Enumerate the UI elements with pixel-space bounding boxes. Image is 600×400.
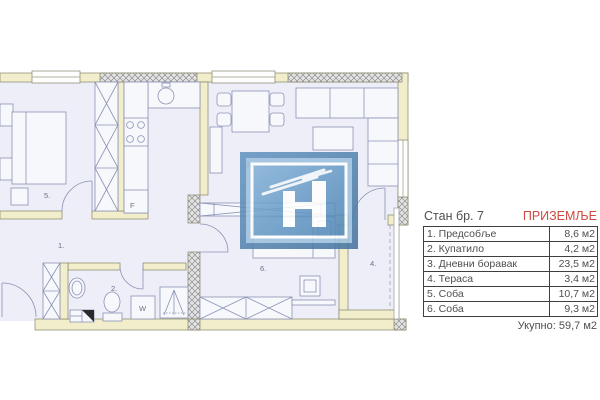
room-name: 5. Соба [424,287,550,302]
label-fridge: F [130,201,135,210]
table-row: 6. Соба 9,3 м2 [424,302,598,317]
table-row: 4. Тераса 3,4 м2 [424,272,598,287]
coffee-table [313,127,353,150]
bathroom-top-wall-right [143,263,186,270]
bathroom-top-wall-left [68,263,120,270]
table-row: 2. Купатило 4,2 м2 [424,242,598,257]
room-area: 3,4 м2 [550,272,598,287]
wardrobe-wall-strip [118,82,124,211]
floor-plan-drawing: 1. 2. 3. 4. 5. 6. F W [0,0,600,400]
table-row: 1. Предсобље 8,6 м2 [424,227,598,242]
total-area: Укупно: 59,7 м2 [423,320,598,332]
room-name: 4. Тераса [424,272,550,287]
bathroom-sink [69,278,85,298]
kitchen-living-wall [200,82,208,195]
room-area: 4,2 м2 [550,242,598,257]
floor-plan-page: 1. 2. 3. 4. 5. 6. F W [0,0,600,400]
room-area: 8,6 м2 [550,227,598,242]
kitchen-stove [124,118,148,146]
bedroom5-wardrobe [95,82,118,211]
kitchen-sink [158,88,174,104]
hallway-closet [43,263,60,319]
bedroom6-desk [300,276,320,296]
table-row: 3. Дневни боравак 23,5 м2 [424,257,598,272]
label-terrace: 4. [370,259,376,268]
bathroom-vanity [70,310,94,322]
living-shelf [210,127,222,173]
floor-title: ПРИЗЕМЉЕ [523,209,597,223]
room-name: 1. Предсобље [424,227,550,242]
label-washer: W [139,304,147,313]
label-bedroom5: 5. [44,191,50,200]
bedroom5-wall-left [0,211,62,219]
watermark-logo [240,152,358,249]
label-hallway: 1. [58,241,64,250]
room-name: 3. Дневни боравак [424,257,550,272]
apartment-title: Стан бр. 7 [424,209,484,223]
room-name: 2. Купатило [424,242,550,257]
terrace-bottom-wall [339,310,397,319]
dining-table [232,91,269,132]
area-summary-panel: Стан бр. 7 ПРИЗЕМЉЕ 1. Предсобље 8,6 м2 … [423,209,598,332]
room-area: 23,5 м2 [550,257,598,272]
area-table: 1. Предсобље 8,6 м2 2. Купатило 4,2 м2 3… [423,226,598,317]
shower [160,287,188,318]
bedroom5-stool [11,188,28,205]
room-name: 6. Соба [424,302,550,317]
kitchen-fridge [124,190,148,213]
room-area: 9,3 м2 [550,302,598,317]
table-row: 5. Соба 10,7 м2 [424,287,598,302]
label-bedroom6: 6. [260,264,266,273]
label-bathroom: 2. [111,284,117,293]
room-area: 10,7 м2 [550,287,598,302]
bathroom-left-wall [60,263,68,319]
panel-header: Стан бр. 7 ПРИЗЕМЉЕ [423,209,598,223]
